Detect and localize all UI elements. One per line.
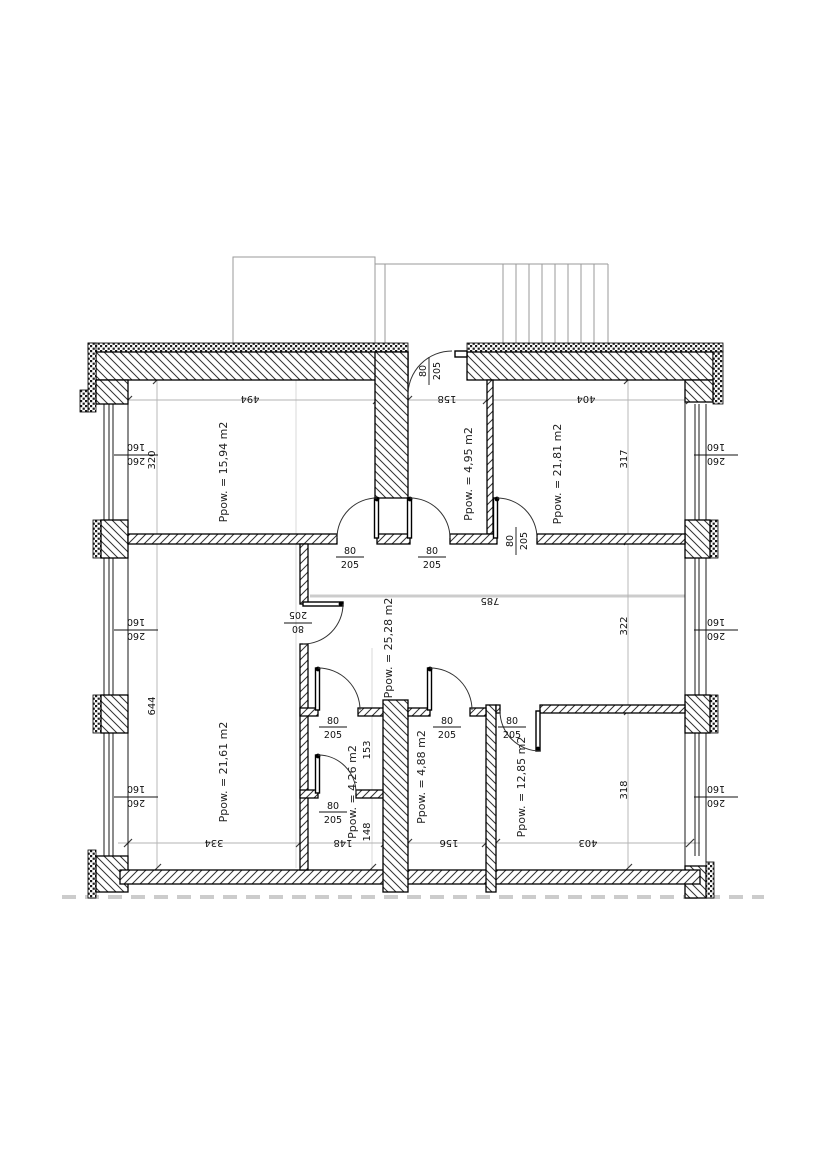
wall-corridor-left-lower: [300, 644, 308, 870]
door-label-wc-lower: 80 205: [319, 801, 347, 826]
wc-area: Ppow. = 4,26 m2: [346, 745, 359, 839]
dim-ticks: [124, 376, 694, 872]
insulation-band-top-right: [467, 343, 723, 352]
bottom-wall: [120, 870, 700, 884]
wall-room1-hall-thick: [375, 352, 408, 498]
svg-text:160: 160: [127, 783, 145, 794]
wall-bathroom-top-seg1: [408, 708, 430, 716]
window-label-right-1: 260 160: [694, 441, 738, 466]
svg-text:160: 160: [707, 783, 725, 794]
window-right-1: [695, 404, 699, 520]
dim-wc-153: 153: [362, 740, 373, 759]
pier-left-2: [101, 695, 128, 733]
door-label-room-top-left: 80 205: [336, 546, 364, 571]
svg-text:205: 205: [324, 815, 342, 826]
svg-text:80: 80: [506, 716, 518, 727]
wall-rowA-seg4: [537, 534, 685, 544]
svg-text:205: 205: [438, 730, 456, 741]
stair-lines: [503, 264, 594, 343]
door-label-wc-upper: 80 205: [319, 716, 347, 741]
insulation-right-pier-2: [710, 695, 718, 733]
wall-hall-room3: [487, 380, 493, 534]
svg-text:205: 205: [519, 532, 530, 550]
door-label-room-top-right: 80 205: [505, 527, 530, 555]
room-top-left-area: Ppow. = 15,94 m2: [217, 422, 230, 523]
dim-bottom-148: 148: [333, 837, 352, 848]
window-left-2: [109, 558, 113, 695]
svg-text:80: 80: [418, 365, 429, 377]
svg-text:80: 80: [441, 716, 453, 727]
door-room-top-right: [494, 497, 538, 538]
staircase-wall: [383, 700, 408, 892]
window-left-3: [109, 733, 113, 856]
window-left-1: [109, 404, 113, 520]
window-label-right-3: 260 160: [694, 783, 738, 808]
wall-room8-top: [540, 705, 685, 713]
svg-text:205: 205: [341, 560, 359, 571]
hall-area: Ppow. = 4,95 m2: [462, 427, 475, 521]
svg-text:160: 160: [707, 616, 725, 627]
insulation-bottom-right-corner: [706, 862, 714, 898]
room-bottom-right-area: Ppow. = 12,85 m2: [515, 737, 528, 838]
svg-text:205: 205: [289, 609, 307, 620]
floor-plan-page: Ppow. = 15,94 m2 Ppow. = 4,95 m2 Ppow. =…: [0, 0, 826, 1169]
pier-top-left-corner: [96, 380, 128, 404]
dim-right-322: 322: [619, 616, 630, 635]
dim-top-404: 404: [576, 393, 595, 404]
insulation-top-right-corner: [713, 352, 723, 404]
wall-wc-upper-seg2: [358, 708, 385, 716]
dim-top-158: 158: [437, 393, 456, 404]
interior-walls: [128, 352, 685, 892]
door-hall: [408, 497, 451, 538]
bathroom-area: Ppow. = 4,88 m2: [415, 730, 428, 824]
svg-text:160: 160: [127, 441, 145, 452]
insulation-left-pier-1: [93, 520, 101, 558]
dim-left-320: 320: [147, 450, 158, 469]
svg-text:80: 80: [344, 546, 356, 557]
svg-text:160: 160: [707, 441, 725, 452]
door-label-room-bottom-left: 80 205: [284, 609, 312, 634]
door-room-top-left: [337, 497, 379, 538]
wall-rowA-seg2: [377, 534, 410, 544]
svg-text:260: 260: [127, 797, 145, 808]
svg-text:205: 205: [503, 730, 521, 741]
floor-plan-canvas: Ppow. = 15,94 m2 Ppow. = 4,95 m2 Ppow. =…: [0, 0, 826, 1169]
insulation-top-left-step: [80, 390, 88, 412]
svg-text:80: 80: [292, 623, 304, 634]
dim-bottom-156: 156: [439, 837, 458, 848]
roof-outline-group: [233, 257, 608, 343]
dim-bottom-334: 334: [204, 837, 223, 848]
svg-text:80: 80: [505, 535, 516, 547]
svg-text:260: 260: [127, 630, 145, 641]
insulation-left-pier-2: [93, 695, 101, 733]
door-label-entrance: 80 205: [418, 357, 443, 385]
svg-text:260: 260: [707, 455, 725, 466]
svg-text:205: 205: [423, 560, 441, 571]
wall-corridor-left-upper: [300, 544, 308, 604]
wall-room8-top-stub: [496, 705, 500, 713]
svg-text:80: 80: [327, 801, 339, 812]
terrace-outline: [233, 257, 375, 343]
pier-top-right-corner: [685, 380, 713, 402]
dim-right-318: 318: [619, 780, 630, 799]
room-top-right-area: Ppow. = 21,81 m2: [551, 424, 564, 525]
window-label-left-2: 260 160: [114, 616, 158, 641]
door-label-bathroom: 80 205: [433, 716, 461, 741]
pier-left-1: [101, 520, 128, 558]
svg-text:205: 205: [324, 730, 342, 741]
window-label-left-3: 260 160: [114, 783, 158, 808]
insulation-top-left-corner: [88, 343, 96, 412]
dim-corridor-785: 785: [480, 595, 499, 606]
wall-rowA-seg1: [128, 534, 337, 544]
insulation-bottom-left-corner: [88, 850, 96, 898]
dim-top-494: 494: [240, 393, 259, 404]
svg-text:260: 260: [127, 455, 145, 466]
dim-bottom-403: 403: [578, 837, 597, 848]
window-label-right-2: 260 160: [694, 616, 738, 641]
svg-text:80: 80: [426, 546, 438, 557]
guide-lines: [118, 376, 700, 872]
pier-right-2: [685, 695, 710, 733]
dim-right-317: 317: [619, 449, 630, 468]
insulation-right-pier-1: [710, 520, 718, 558]
svg-text:205: 205: [432, 362, 443, 380]
corridor-area: Ppow. = 25,28 m2: [382, 598, 395, 699]
door-label-hall: 80 205: [418, 546, 446, 571]
wall-wc-lower-seg2: [356, 790, 385, 798]
wall-bathroom-right: [486, 705, 496, 892]
svg-text:160: 160: [127, 616, 145, 627]
svg-text:260: 260: [707, 797, 725, 808]
top-wall-right-segment: [467, 352, 713, 380]
upper-structure-outline: [375, 264, 608, 343]
window-right-2: [695, 558, 699, 695]
insulation-band-top-left: [88, 343, 408, 352]
window-right-3: [695, 733, 699, 856]
room-bottom-left-area: Ppow. = 21,61 m2: [217, 722, 230, 823]
wall-rowA-seg3: [450, 534, 497, 544]
svg-text:80: 80: [327, 716, 339, 727]
pier-right-1: [685, 520, 710, 558]
top-wall-left-segment: [96, 352, 408, 380]
svg-text:260: 260: [707, 630, 725, 641]
dim-left-644: 644: [147, 696, 158, 715]
door-wc-upper: [316, 667, 361, 710]
door-bathroom: [428, 667, 473, 710]
dim-wc-148: 148: [362, 822, 373, 841]
